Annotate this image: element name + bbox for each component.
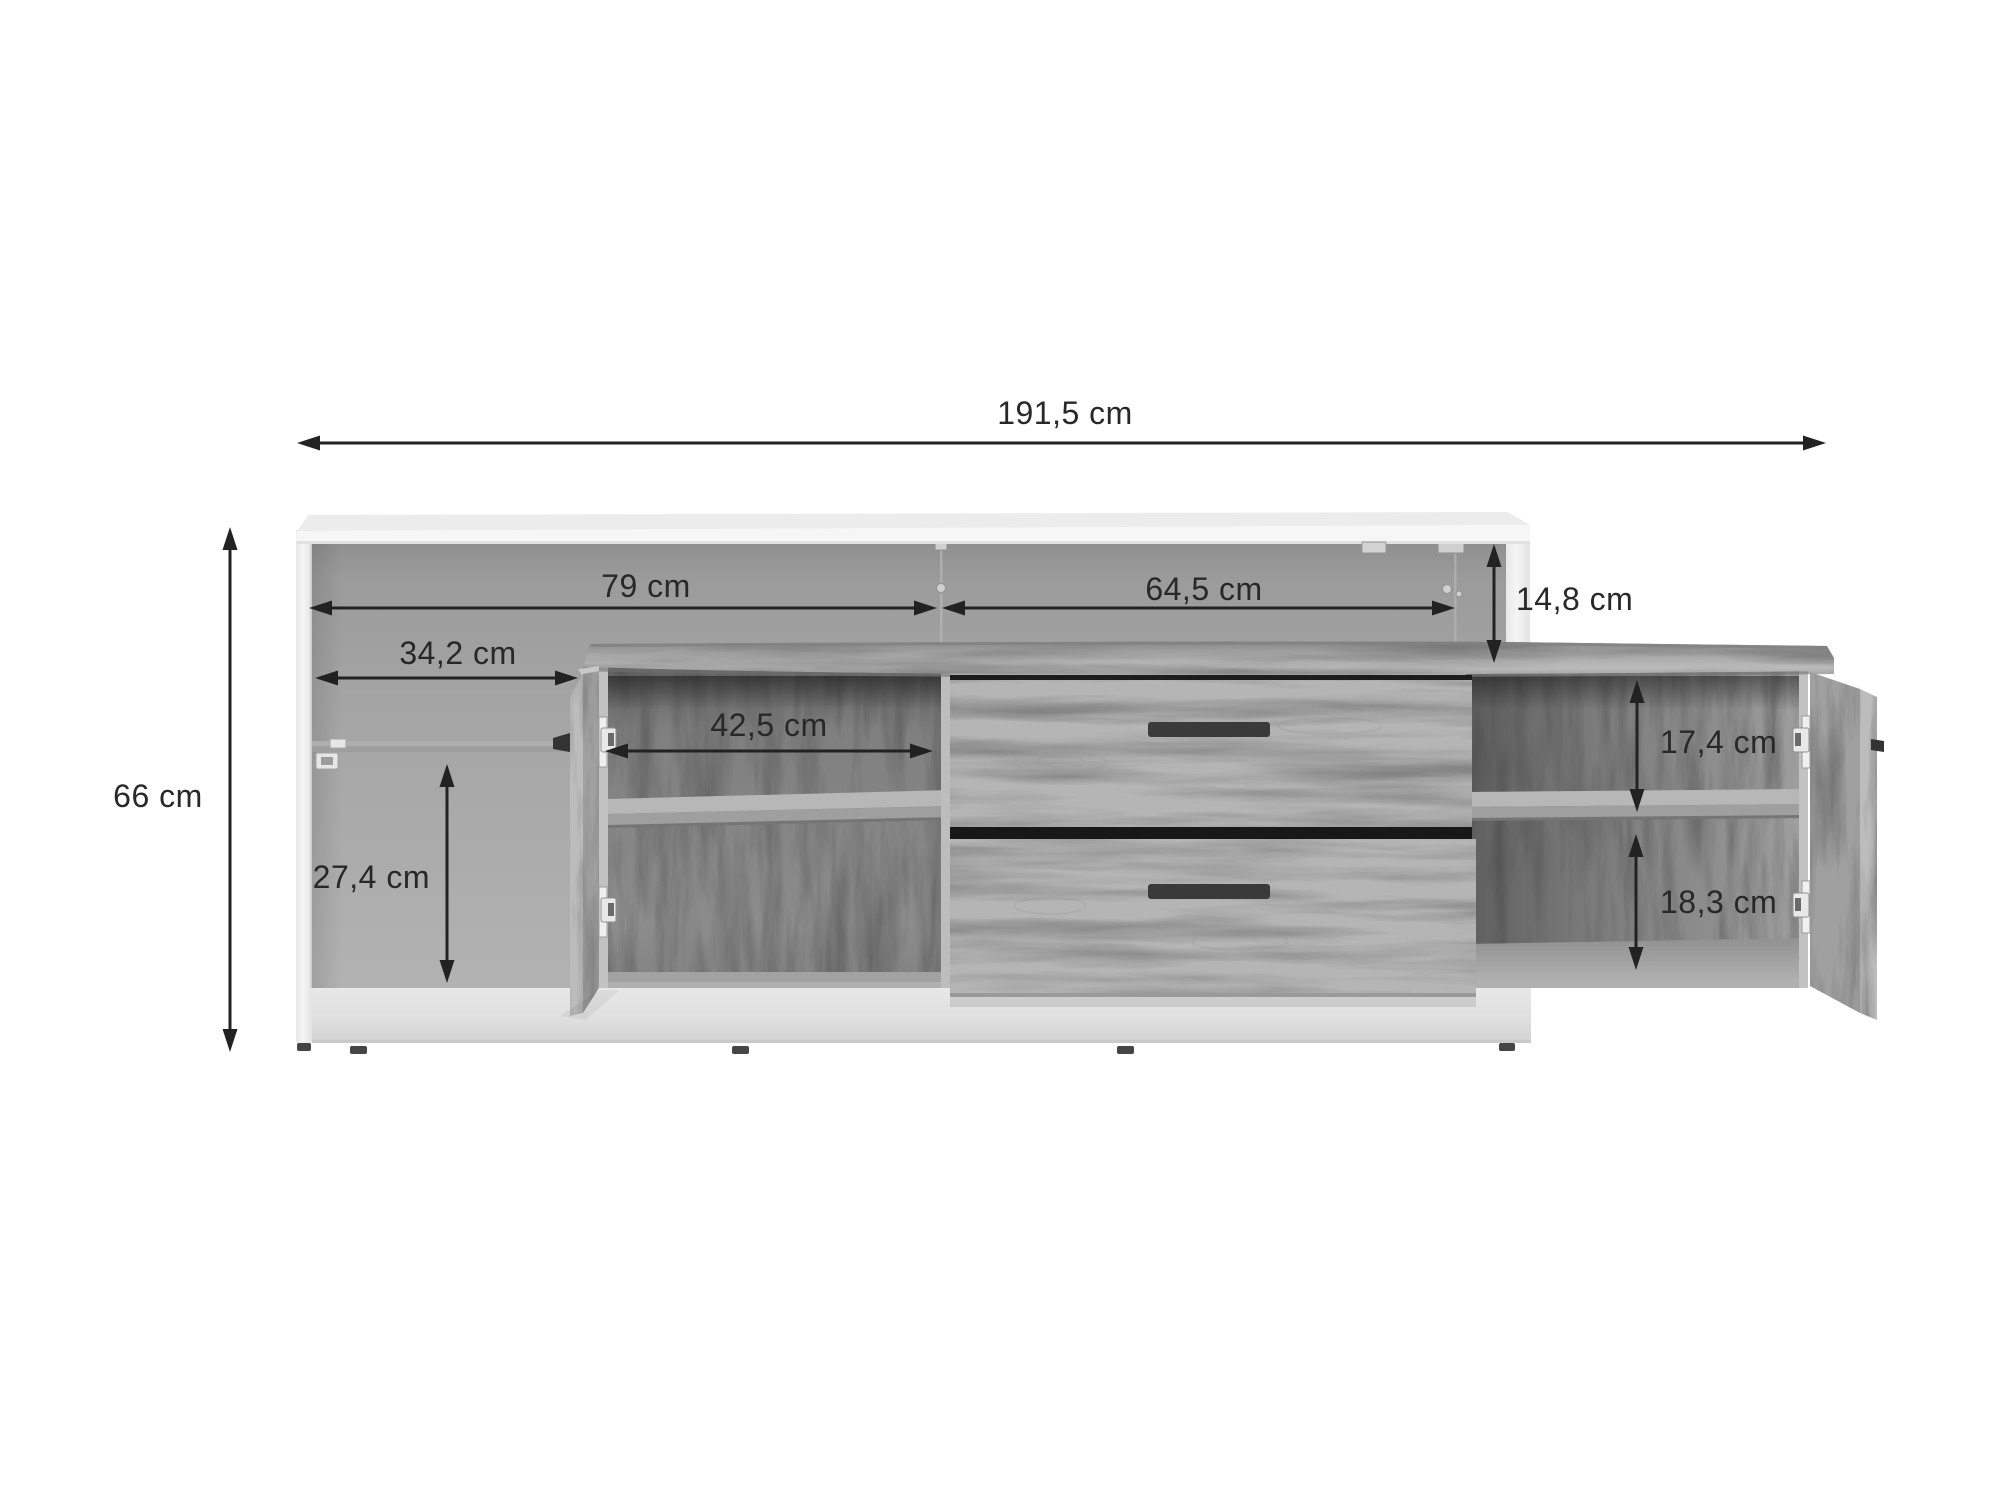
svg-text:66 cm: 66 cm [113,778,203,814]
svg-text:18,3 cm: 18,3 cm [1660,884,1777,920]
svg-text:14,8 cm: 14,8 cm [1516,581,1633,617]
svg-text:27,4 cm: 27,4 cm [313,859,430,895]
svg-text:64,5 cm: 64,5 cm [1145,571,1262,607]
svg-text:42,5 cm: 42,5 cm [710,707,827,743]
svg-text:191,5 cm: 191,5 cm [997,395,1133,431]
svg-text:34,2 cm: 34,2 cm [399,635,516,671]
svg-text:79 cm: 79 cm [601,568,691,604]
svg-text:17,4 cm: 17,4 cm [1660,724,1777,760]
